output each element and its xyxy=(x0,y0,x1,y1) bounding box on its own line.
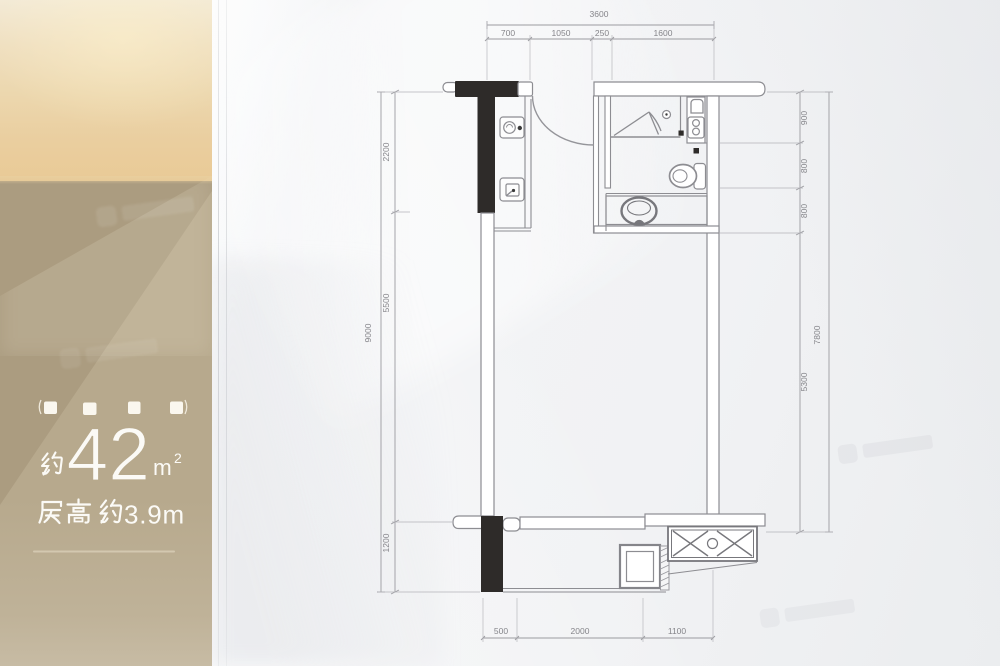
svg-text:800: 800 xyxy=(799,204,809,218)
svg-text:1050: 1050 xyxy=(552,28,571,38)
svg-text:1100: 1100 xyxy=(668,626,687,636)
svg-text:9000: 9000 xyxy=(363,323,373,342)
svg-text:700: 700 xyxy=(501,28,515,38)
svg-text:7800: 7800 xyxy=(812,325,822,344)
svg-text:1200: 1200 xyxy=(381,533,391,552)
svg-text:3600: 3600 xyxy=(590,9,609,19)
svg-text:2000: 2000 xyxy=(571,626,590,636)
svg-text:5500: 5500 xyxy=(381,293,391,312)
svg-text:250: 250 xyxy=(595,28,609,38)
svg-text:800: 800 xyxy=(799,159,809,173)
svg-text:500: 500 xyxy=(494,626,508,636)
svg-text:5300: 5300 xyxy=(799,372,809,391)
svg-text:900: 900 xyxy=(799,111,809,125)
svg-text:2200: 2200 xyxy=(381,142,391,161)
svg-text:1600: 1600 xyxy=(654,28,673,38)
